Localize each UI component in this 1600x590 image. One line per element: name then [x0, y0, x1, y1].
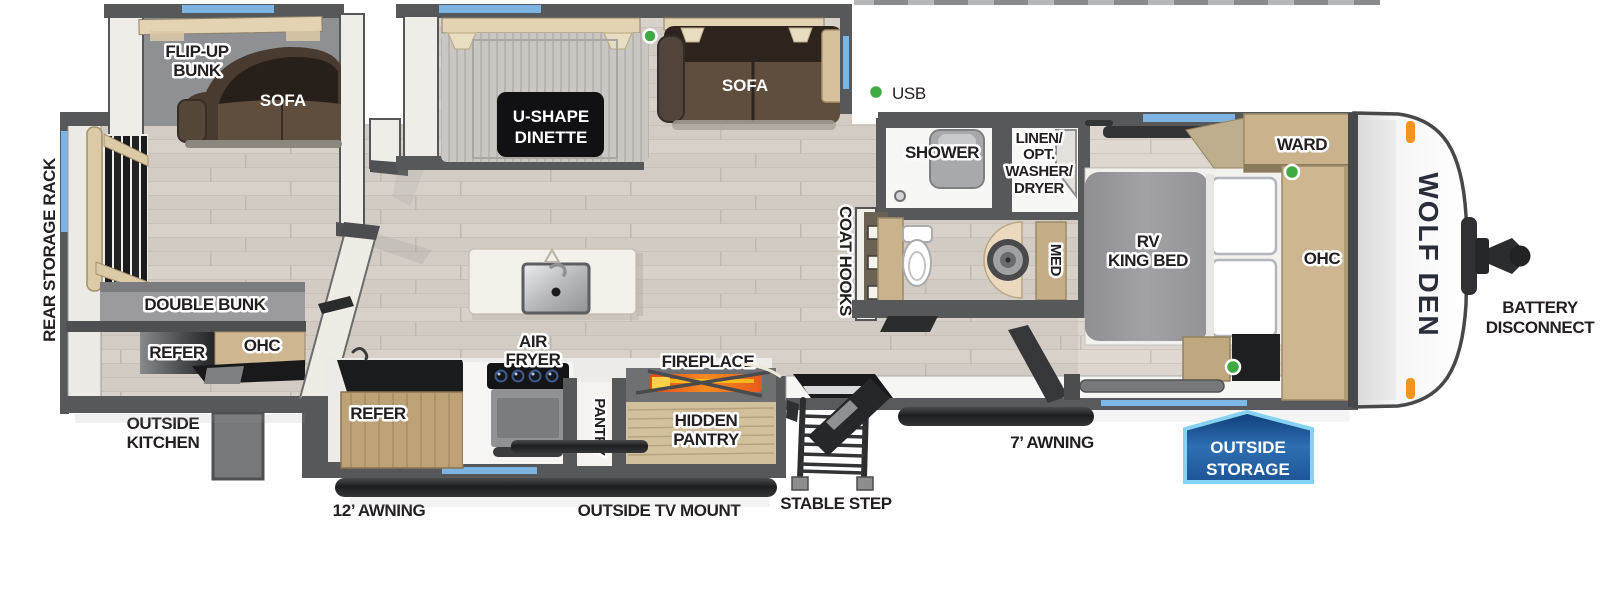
- svg-text:WOLF DEN: WOLF DEN: [1413, 172, 1444, 337]
- svg-text:WASHER/: WASHER/: [1005, 163, 1073, 180]
- svg-text:OUTSIDE: OUTSIDE: [1210, 438, 1286, 457]
- svg-text:FRYER: FRYER: [506, 350, 561, 369]
- svg-text:LINEN/: LINEN/: [1016, 130, 1064, 147]
- svg-text:KITCHEN: KITCHEN: [127, 433, 200, 452]
- svg-text:REAR STORAGE RACK: REAR STORAGE RACK: [40, 157, 59, 342]
- svg-text:USB: USB: [892, 84, 926, 103]
- svg-text:FLIP-UP: FLIP-UP: [165, 42, 228, 61]
- svg-text:7’ AWNING: 7’ AWNING: [1010, 433, 1094, 452]
- svg-text:REFER: REFER: [350, 404, 406, 423]
- svg-text:FIREPLACE: FIREPLACE: [662, 352, 755, 371]
- svg-text:STORAGE: STORAGE: [1206, 460, 1290, 479]
- svg-text:STABLE STEP: STABLE STEP: [780, 494, 892, 513]
- svg-text:AIR: AIR: [519, 332, 547, 351]
- svg-text:KING BED: KING BED: [1108, 251, 1188, 270]
- svg-text:MED: MED: [1047, 244, 1064, 277]
- svg-text:HIDDEN: HIDDEN: [675, 411, 738, 430]
- svg-text:SOFA: SOFA: [722, 76, 768, 95]
- svg-text:DRYER: DRYER: [1014, 180, 1065, 197]
- svg-text:U-SHAPE: U-SHAPE: [513, 107, 590, 126]
- svg-text:OHC: OHC: [1304, 249, 1341, 268]
- svg-text:SOFA: SOFA: [260, 91, 306, 110]
- svg-text:WARD: WARD: [1277, 135, 1327, 154]
- svg-text:COAT HOOKS: COAT HOOKS: [836, 206, 855, 316]
- svg-text:RV: RV: [1137, 232, 1161, 251]
- svg-text:BUNK: BUNK: [173, 61, 222, 80]
- svg-text:DISCONNECT: DISCONNECT: [1486, 318, 1595, 337]
- svg-text:REFER: REFER: [149, 343, 205, 362]
- svg-text:PANTRY: PANTRY: [673, 430, 740, 449]
- svg-text:OPT.: OPT.: [1023, 146, 1055, 163]
- svg-text:DOUBLE BUNK: DOUBLE BUNK: [144, 295, 266, 314]
- svg-text:SHOWER: SHOWER: [905, 143, 979, 162]
- svg-text:OHC: OHC: [244, 336, 281, 355]
- svg-text:DINETTE: DINETTE: [515, 128, 588, 147]
- svg-text:BATTERY: BATTERY: [1502, 298, 1579, 317]
